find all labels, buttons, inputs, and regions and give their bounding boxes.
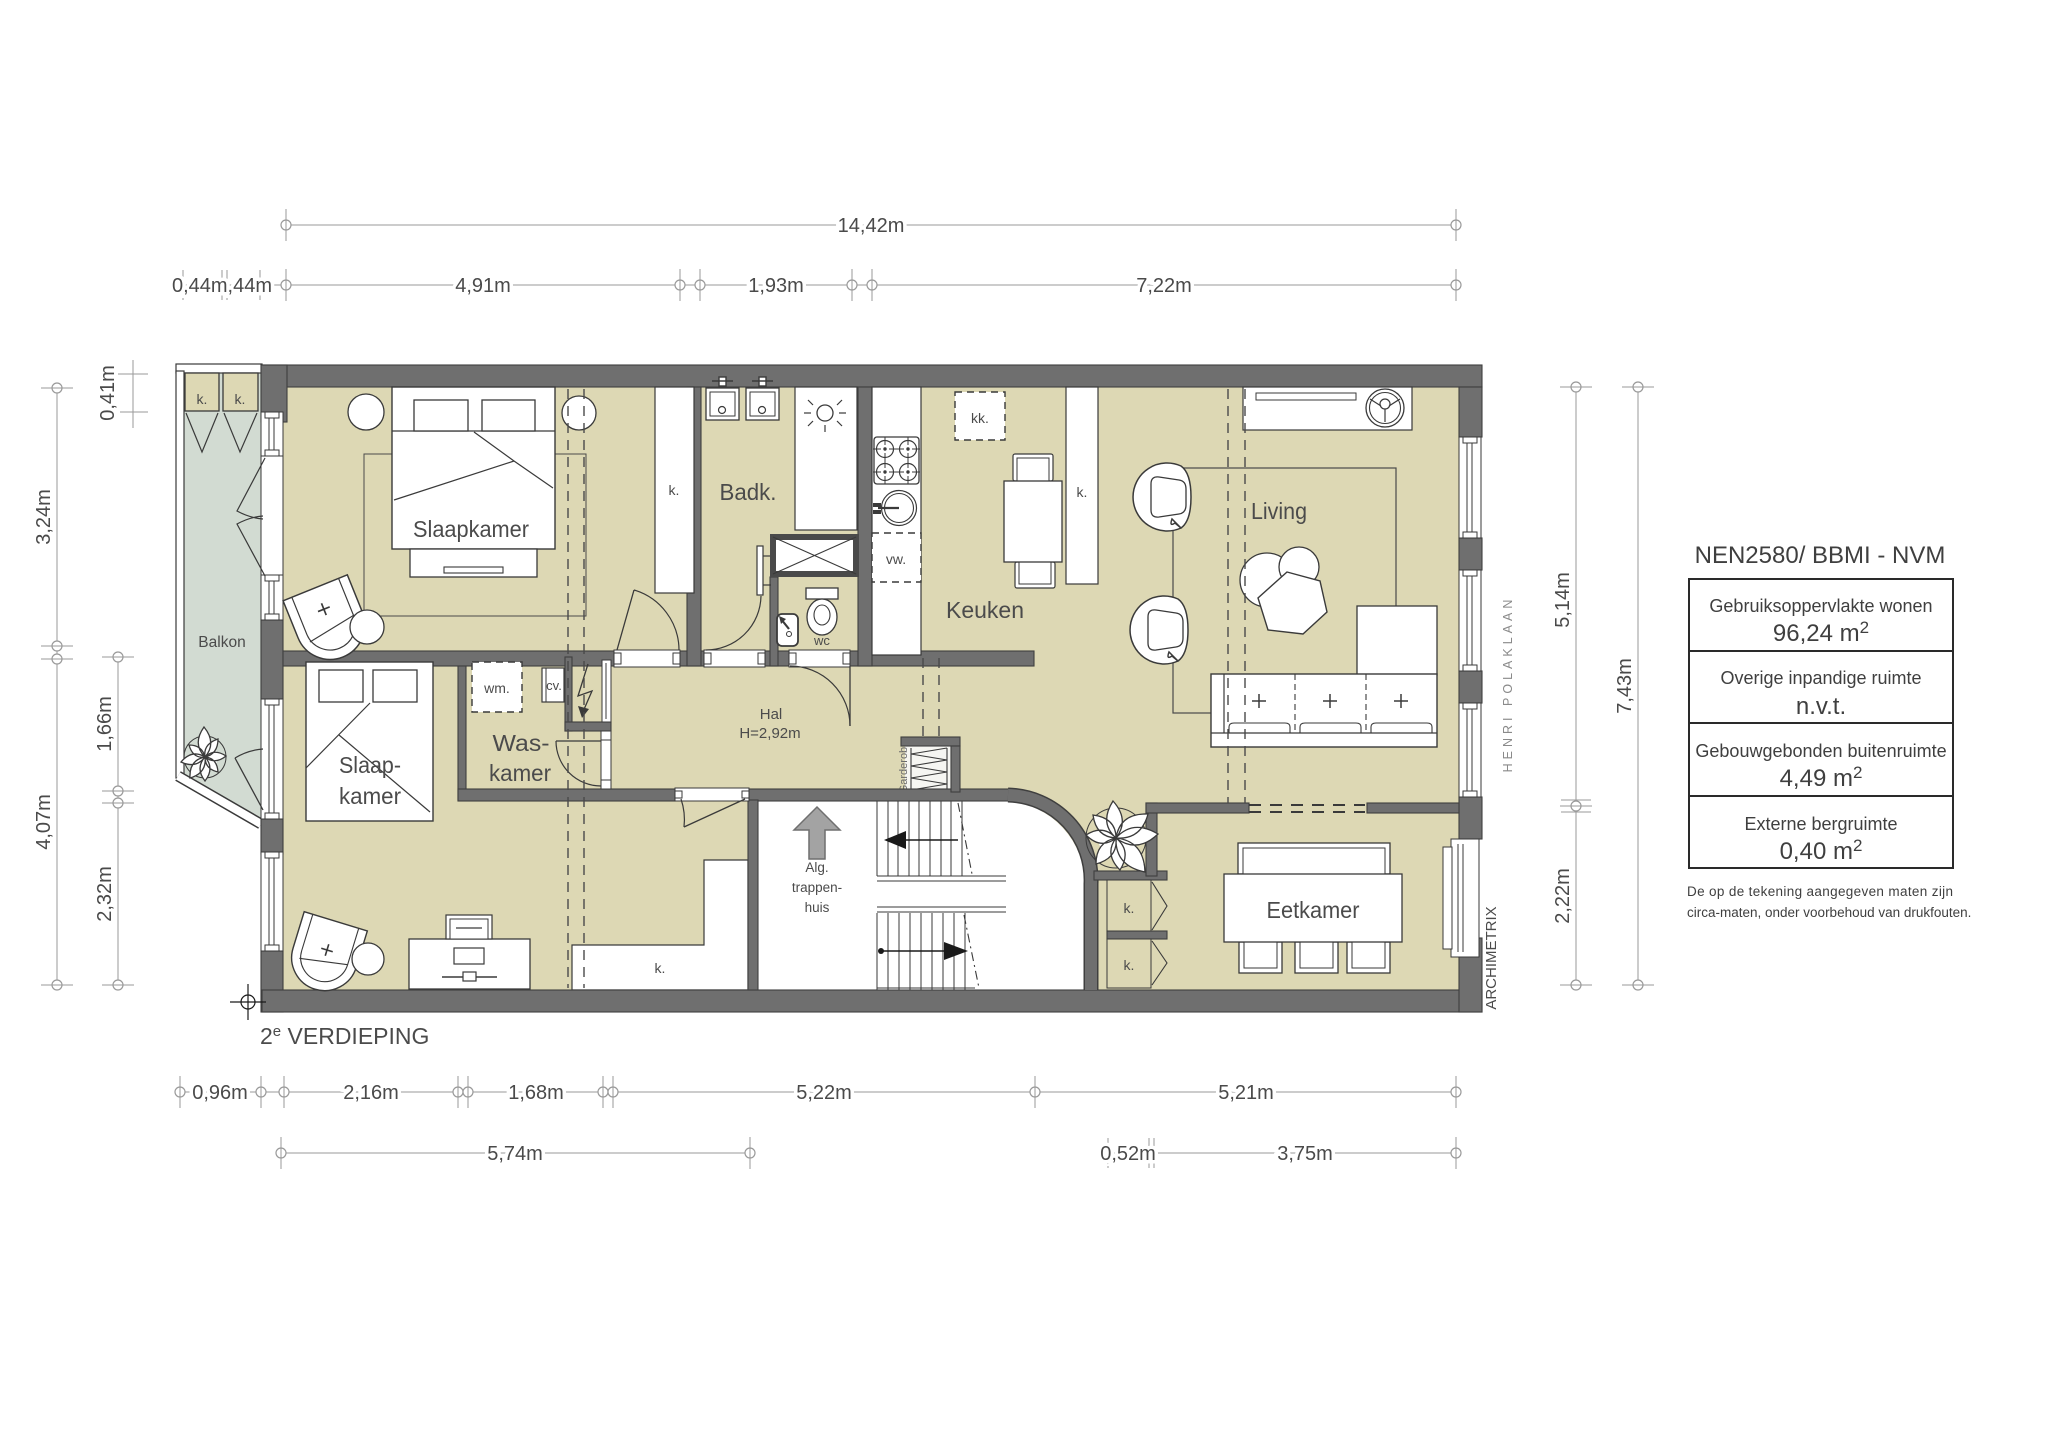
- svg-text:0,96m: 0,96m: [192, 1082, 248, 1104]
- svg-text:5,14m: 5,14m: [1552, 572, 1574, 628]
- svg-text:huis: huis: [805, 900, 830, 915]
- svg-text:Garderobe: Garderobe: [898, 741, 910, 794]
- svg-text:4,07m: 4,07m: [33, 794, 55, 850]
- svg-text:Slaap-: Slaap-: [339, 752, 401, 778]
- svg-text:Externe bergruimte: Externe bergruimte: [1744, 814, 1897, 834]
- svg-text:k.: k.: [1124, 900, 1135, 916]
- svg-text:vw.: vw.: [886, 551, 906, 567]
- svg-text:Living: Living: [1251, 498, 1307, 524]
- svg-text:7,43m: 7,43m: [1614, 658, 1636, 714]
- svg-text:k.: k.: [655, 960, 666, 976]
- svg-text:2e VERDIEPING: 2e VERDIEPING: [260, 1023, 429, 1049]
- svg-text:14,42m: 14,42m: [838, 215, 905, 237]
- svg-text:0,40 m2: 0,40 m2: [1780, 836, 1863, 865]
- svg-text:trappen-: trappen-: [792, 880, 842, 895]
- svg-text:2,32m: 2,32m: [94, 866, 116, 922]
- svg-text:kk.: kk.: [971, 410, 989, 426]
- svg-text:0,44m,44m: 0,44m,44m: [172, 275, 272, 297]
- svg-text:k.: k.: [669, 482, 680, 498]
- svg-text:kamer: kamer: [489, 760, 551, 786]
- svg-text:1,68m: 1,68m: [508, 1082, 564, 1104]
- svg-text:1,66m: 1,66m: [94, 696, 116, 752]
- svg-text:Overige inpandige ruimte: Overige inpandige ruimte: [1720, 668, 1921, 688]
- svg-text:Eetkamer: Eetkamer: [1267, 897, 1360, 923]
- svg-text:Alg.: Alg.: [805, 860, 828, 875]
- svg-text:5,21m: 5,21m: [1218, 1082, 1274, 1104]
- svg-text:Hal: Hal: [760, 706, 783, 723]
- svg-text:HENRI POLAKLAAN: HENRI POLAKLAAN: [1501, 596, 1515, 773]
- svg-text:Badk.: Badk.: [720, 479, 777, 505]
- svg-text:3,75m: 3,75m: [1277, 1143, 1333, 1165]
- svg-text:cv.: cv.: [546, 678, 562, 693]
- svg-text:Balkon: Balkon: [198, 634, 245, 651]
- svg-text:k.: k.: [1124, 957, 1135, 973]
- svg-text:2,22m: 2,22m: [1552, 868, 1574, 924]
- svg-text:Keuken: Keuken: [946, 597, 1024, 623]
- svg-text:k.: k.: [1077, 484, 1088, 500]
- svg-text:Was-: Was-: [493, 730, 550, 756]
- svg-text:0,52m: 0,52m: [1100, 1143, 1156, 1165]
- svg-text:Gebouwgebonden buitenruimte: Gebouwgebonden buitenruimte: [1695, 741, 1946, 761]
- svg-text:7,22m: 7,22m: [1136, 275, 1192, 297]
- svg-text:k.: k.: [235, 391, 246, 407]
- svg-text:H=2,92m: H=2,92m: [739, 725, 800, 742]
- svg-text:circa-maten, onder voorbehoud: circa-maten, onder voorbehoud van drukfo…: [1687, 905, 1971, 920]
- svg-text:wc: wc: [813, 633, 830, 648]
- svg-text:Gebruiksoppervlakte wonen: Gebruiksoppervlakte wonen: [1709, 596, 1932, 616]
- svg-text:wm.: wm.: [483, 680, 510, 696]
- svg-text:De op de tekening aangegeven m: De op de tekening aangegeven maten zijn: [1687, 884, 1953, 899]
- svg-text:NEN2580/ BBMI - NVM: NEN2580/ BBMI - NVM: [1695, 542, 1946, 569]
- svg-text:4,49 m2: 4,49 m2: [1780, 763, 1863, 792]
- svg-text:5,74m: 5,74m: [487, 1143, 543, 1165]
- svg-text:5,22m: 5,22m: [796, 1082, 852, 1104]
- svg-text:Slaapkamer: Slaapkamer: [413, 516, 529, 542]
- svg-text:ARCHIMETRIX: ARCHIMETRIX: [1483, 906, 1500, 1009]
- svg-text:k.: k.: [197, 391, 208, 407]
- svg-text:n.v.t.: n.v.t.: [1796, 693, 1846, 720]
- svg-text:3,24m: 3,24m: [33, 489, 55, 545]
- svg-text:96,24 m2: 96,24 m2: [1773, 618, 1869, 647]
- svg-text:4,91m: 4,91m: [455, 275, 511, 297]
- svg-text:1,93m: 1,93m: [748, 275, 804, 297]
- svg-text:0,41m: 0,41m: [97, 365, 119, 421]
- svg-text:2,16m: 2,16m: [343, 1082, 399, 1104]
- svg-text:kamer: kamer: [339, 783, 401, 809]
